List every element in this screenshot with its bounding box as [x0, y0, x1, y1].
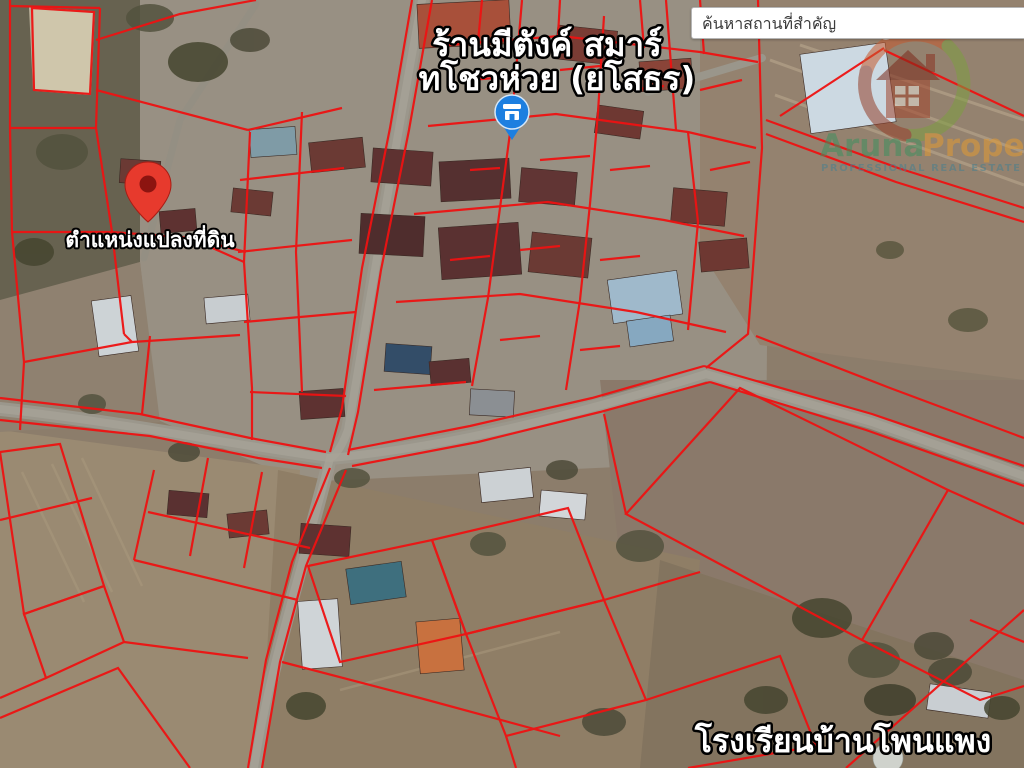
- map-view[interactable]: ร้านมีตังค์ สมาร์ ทโชวห่วย (ยโสธร) ตำแหน…: [0, 0, 1024, 768]
- storefront-icon: [503, 104, 521, 120]
- brand-name-second: Property: [922, 128, 1024, 164]
- brand-name-first: Aruna: [820, 128, 924, 164]
- parcel-pin-label: ตำแหน่งแปลงที่ดิน: [65, 224, 235, 252]
- search-bar: [691, 7, 1024, 39]
- school-label: โรงเรียนบ้านโพนแพง: [694, 722, 991, 760]
- brand-tagline: PROFESSIONAL REAL ESTATE AGENT: [821, 163, 1024, 174]
- satellite-map-canvas[interactable]: ร้านมีตังค์ สมาร์ ทโชวห่วย (ยโสธร) ตำแหน…: [0, 0, 1024, 768]
- shop-label: ร้านมีตังค์ สมาร์ ทโชวห่วย (ยโสธร): [419, 25, 696, 98]
- search-input[interactable]: [692, 8, 1024, 38]
- svg-text:ทโชวห่วย (ยโสธร): ทโชวห่วย (ยโสธร): [419, 59, 696, 98]
